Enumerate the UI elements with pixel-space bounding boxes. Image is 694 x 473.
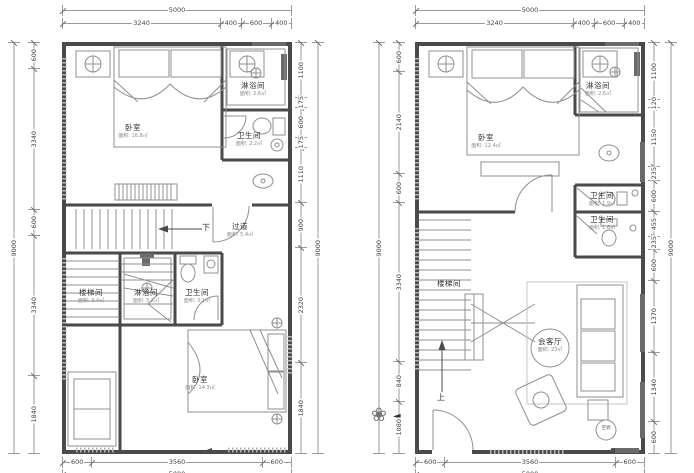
door-swing bbox=[194, 296, 218, 320]
dim-label: 600 bbox=[396, 181, 403, 195]
right-plan-dim-right-overall: 9000 bbox=[665, 42, 677, 454]
toilet-tank bbox=[601, 219, 617, 226]
dim-label: 600 bbox=[651, 430, 658, 444]
paper-holder bbox=[630, 225, 636, 231]
ceiling-lamp-icon bbox=[272, 318, 282, 328]
stair-treads bbox=[419, 220, 471, 370]
sofa-cushion bbox=[581, 299, 615, 329]
dim-label: 400 bbox=[274, 20, 288, 27]
round-table bbox=[531, 329, 569, 367]
right-plan-dim-top-overall: 5000 bbox=[415, 5, 645, 16]
sofa bbox=[577, 285, 623, 397]
door-swing bbox=[224, 116, 246, 138]
right-plan-drawing bbox=[415, 42, 645, 454]
dim-label: 235 bbox=[651, 235, 658, 249]
dim-label: 235 bbox=[651, 166, 658, 180]
right-plan-dim-right-segments: 1100 120 1150 235 600 455 235 600 1370 1… bbox=[648, 42, 660, 454]
dim-label: 5000 bbox=[168, 7, 187, 14]
left-plan-dim-top-segments: 3240 400 600 400 bbox=[62, 18, 292, 29]
dim-label: 600 bbox=[270, 459, 284, 466]
dim-label: 1080 bbox=[396, 418, 403, 437]
ceiling-lamp-icon bbox=[592, 56, 608, 72]
toilet-bowl bbox=[599, 192, 615, 206]
door-swing bbox=[213, 206, 249, 242]
stair-treads bbox=[76, 209, 172, 249]
left-plan-dim-right-segments: 1100 175 600 175 1110 900 2320 1840 bbox=[295, 42, 307, 454]
shower-drain-icon bbox=[251, 68, 261, 78]
dim-label: 9000 bbox=[668, 239, 675, 258]
dim-label: 1340 bbox=[651, 378, 658, 397]
left-plan-dim-bottom-segments: 600 3560 600 bbox=[62, 457, 292, 468]
dim-label: 120 bbox=[651, 96, 658, 110]
pillow bbox=[119, 50, 169, 77]
dim-label: 1100 bbox=[651, 62, 658, 81]
pillow bbox=[171, 50, 221, 77]
basin bbox=[253, 174, 273, 188]
shower-drain-icon bbox=[142, 283, 152, 293]
dim-label: 1370 bbox=[651, 307, 658, 326]
shower-door bbox=[581, 88, 606, 112]
dim-label: 1100 bbox=[298, 61, 305, 80]
bed-bench bbox=[481, 162, 559, 176]
sofa-cushion bbox=[581, 331, 615, 361]
left-plan-dim-left-segments: 600 3340 600 3340 1840 bbox=[28, 42, 40, 454]
left-plan-dim-right-overall: 9000 bbox=[312, 42, 324, 454]
basin bbox=[204, 256, 218, 273]
stair-rails bbox=[471, 294, 535, 360]
ac-label: 空调 bbox=[596, 427, 616, 432]
toilet-tank bbox=[617, 192, 627, 205]
door-swing bbox=[515, 175, 552, 212]
dim-label: 3240 bbox=[485, 20, 504, 27]
dim-label: 600 bbox=[651, 258, 658, 272]
dim-label: 600 bbox=[70, 459, 84, 466]
dim-label: 9000 bbox=[315, 239, 322, 258]
dim-label: 600 bbox=[396, 50, 403, 64]
left-plan-dim-left-overall: 9000 bbox=[8, 42, 20, 454]
paper-holder bbox=[632, 190, 638, 196]
dim-label: 1110 bbox=[298, 165, 305, 184]
right-plan-dim-left-overall: 9000 bbox=[373, 42, 385, 454]
dim-label: 3340 bbox=[31, 296, 38, 315]
dim-label: 400 bbox=[627, 20, 641, 27]
dim-label: 600 bbox=[602, 20, 616, 27]
dim-label: 600 bbox=[31, 215, 38, 229]
dim-label: 1150 bbox=[651, 128, 658, 147]
dim-label: 2140 bbox=[396, 113, 403, 132]
right-plan-furniture bbox=[419, 47, 638, 450]
dim-label: 600 bbox=[31, 48, 38, 62]
stair-treads bbox=[66, 261, 118, 317]
toilet-bowl bbox=[181, 264, 195, 282]
dim-label: 5000 bbox=[521, 7, 540, 14]
toilet-bowl bbox=[602, 230, 616, 246]
dim-label: 3560 bbox=[168, 459, 187, 466]
left-plan-drawing bbox=[62, 42, 292, 454]
sofa-cushion bbox=[581, 363, 615, 391]
up-arrow bbox=[439, 340, 446, 350]
dim-label: 3240 bbox=[132, 20, 151, 27]
door-swing bbox=[577, 216, 597, 234]
dim-label: 455 bbox=[651, 217, 658, 231]
dim-label: 600 bbox=[623, 459, 637, 466]
right-plan-dim-top-segments: 3240 400 600 400 bbox=[415, 18, 645, 29]
left-plan-dim-bottom-overall: 5000 bbox=[62, 469, 292, 473]
dim-label: 1840 bbox=[298, 399, 305, 418]
floor-plan-sheet: 5000 3240 400 600 400 9000 600 3340 600 … bbox=[0, 0, 694, 473]
right-plan-dim-left-segments: 600 2140 600 3340 840 1080 bbox=[393, 42, 405, 454]
basin bbox=[599, 145, 619, 161]
toilet-bowl bbox=[253, 118, 271, 134]
ceiling-lamp-icon bbox=[272, 414, 282, 424]
dim-label: 400 bbox=[224, 20, 238, 27]
shower-drain-icon bbox=[610, 67, 620, 77]
dim-label: 9000 bbox=[11, 239, 18, 258]
entry-door-swing bbox=[433, 410, 473, 450]
dim-label: 600 bbox=[249, 20, 263, 27]
door-swing bbox=[577, 188, 599, 206]
up-label: 上 bbox=[437, 394, 445, 402]
dresser bbox=[115, 184, 177, 200]
toilet-tank bbox=[180, 256, 196, 264]
dim-label: 1840 bbox=[31, 405, 38, 424]
dim-label: 2320 bbox=[298, 296, 305, 315]
right-floor-plan: 卧室 面积: 12.4㎡ 淋浴间 面积: 2.6㎡ 卫生间 面积: 1.9㎡ 卫… bbox=[415, 42, 645, 454]
dim-label: 175 bbox=[298, 95, 305, 109]
down-label: 下 bbox=[202, 224, 210, 232]
pillow bbox=[524, 50, 574, 78]
dim-label: 840 bbox=[396, 374, 403, 388]
ceiling-lamp-icon bbox=[438, 56, 454, 72]
dim-label: 900 bbox=[298, 218, 305, 232]
pillow bbox=[472, 50, 522, 78]
dim-label: 3340 bbox=[396, 273, 403, 292]
left-plan-dim-top-overall: 5000 bbox=[62, 5, 292, 16]
dim-label: 400 bbox=[577, 20, 591, 27]
side-table bbox=[588, 400, 608, 420]
lounge-chair bbox=[514, 373, 567, 426]
shower-tray bbox=[580, 48, 638, 112]
toilet-tank bbox=[273, 118, 285, 135]
plant-icon: ❀ bbox=[371, 404, 387, 426]
dim-label: 600 bbox=[423, 459, 437, 466]
left-floor-plan: 卧室 面积: 16.8㎡ 淋浴间 面积: 2.6㎡ 卫生间 面积: 2.2㎡ 下… bbox=[62, 42, 292, 454]
dim-label: 175 bbox=[298, 135, 305, 149]
dim-label: 600 bbox=[298, 115, 305, 129]
dim-label: 9000 bbox=[376, 239, 383, 258]
sink bbox=[271, 139, 283, 151]
right-plan-dim-bottom-segments: 600 3560 600 bbox=[415, 457, 645, 468]
right-plan-dim-bottom-overall: 5000 bbox=[415, 469, 645, 473]
dim-label: 600 bbox=[651, 189, 658, 203]
left-plan-furniture bbox=[66, 47, 286, 446]
dim-label: 3340 bbox=[31, 130, 38, 149]
dim-label: 3560 bbox=[521, 459, 540, 466]
ceiling-lamp-icon bbox=[85, 56, 101, 72]
